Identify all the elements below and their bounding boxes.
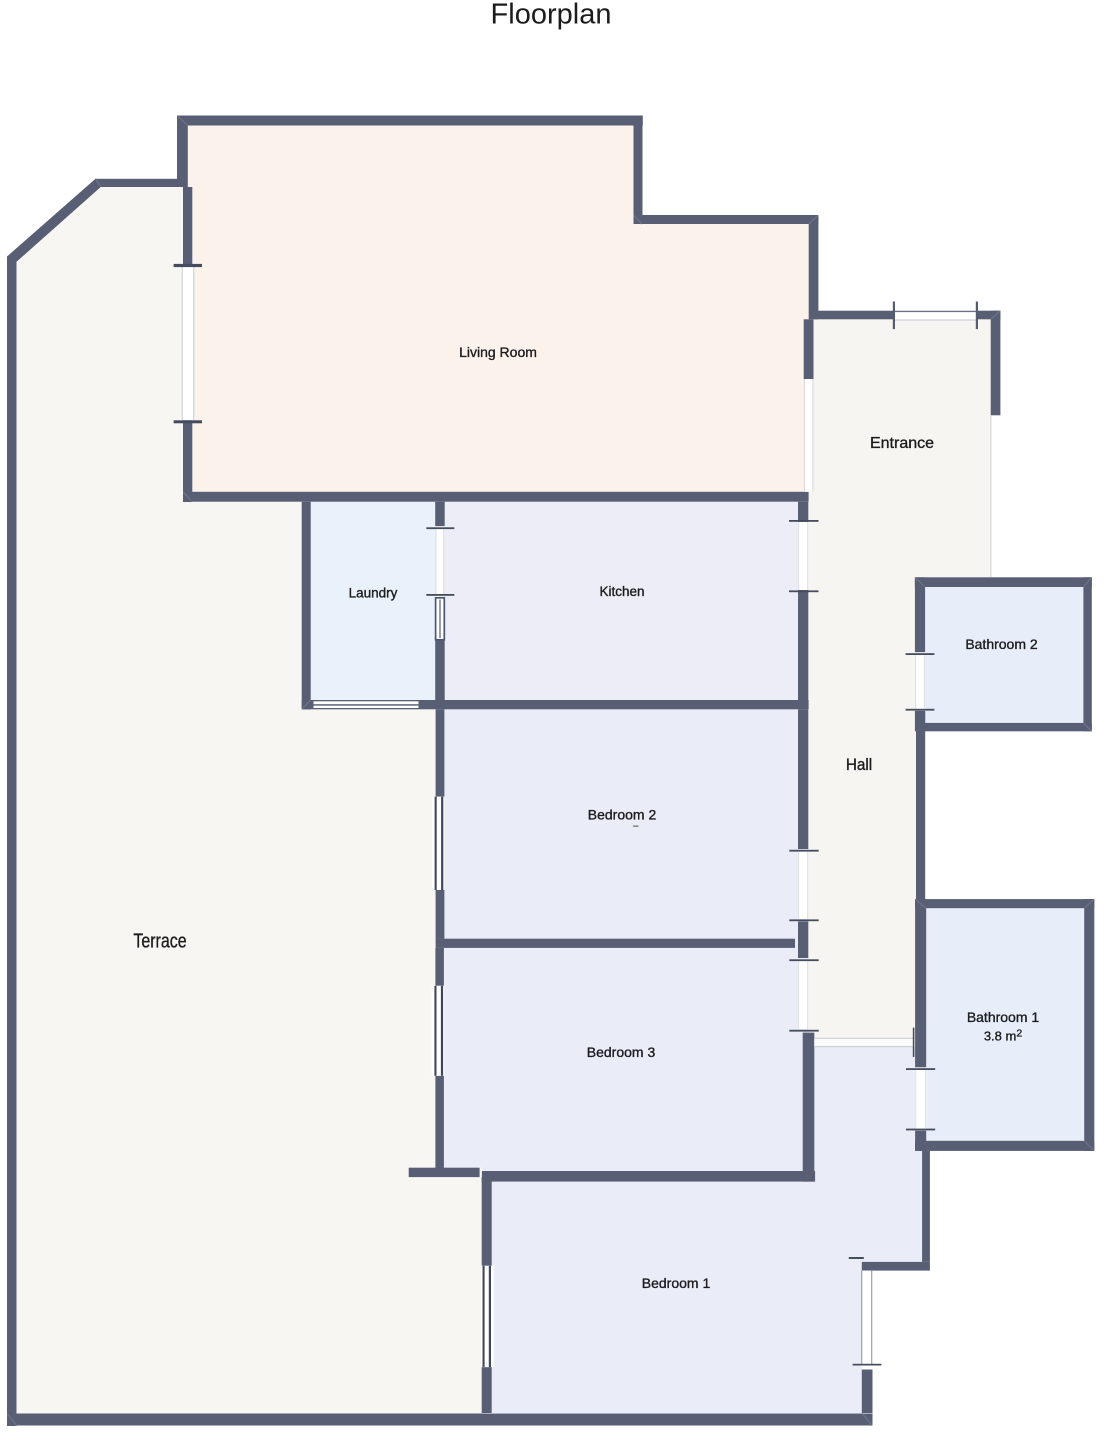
svg-text:Bathroom 2: Bathroom 2 [965,636,1038,652]
svg-text:Floorplan: Floorplan [491,0,612,31]
svg-text:Bedroom 3: Bedroom 3 [587,1044,656,1060]
svg-text:Entrance: Entrance [870,435,934,452]
svg-text:Hall: Hall [846,755,872,774]
svg-text:Bedroom 1: Bedroom 1 [642,1275,711,1291]
svg-text:Bathroom 1: Bathroom 1 [967,1009,1040,1025]
svg-text:Living Room: Living Room [459,344,537,360]
svg-text:Bedroom 2: Bedroom 2 [588,807,657,823]
svg-text:Laundry: Laundry [349,585,398,600]
svg-text:Terrace: Terrace [133,930,186,952]
svg-text:Kitchen: Kitchen [599,584,644,599]
